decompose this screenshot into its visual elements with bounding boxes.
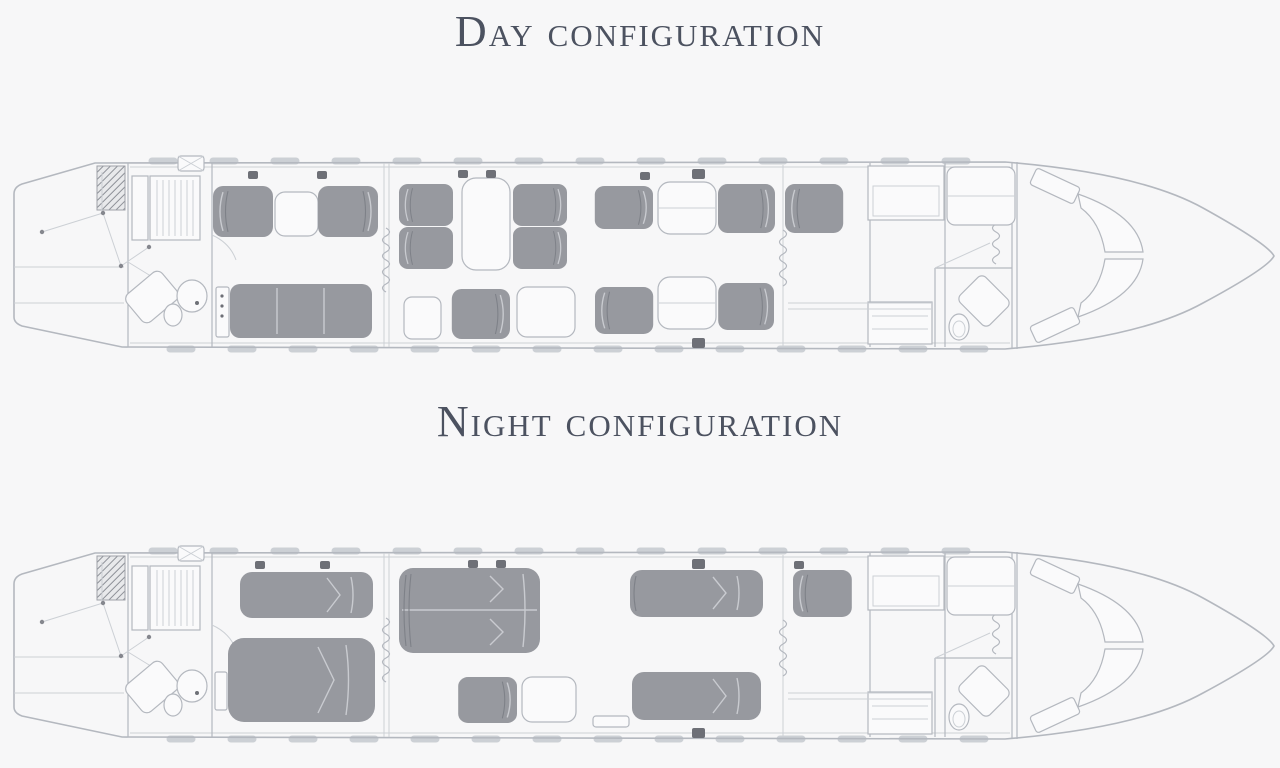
seat	[718, 283, 774, 330]
ottoman	[522, 677, 576, 722]
conference-seat	[513, 184, 567, 226]
day-plan	[14, 156, 1274, 349]
bed	[240, 572, 373, 618]
seat	[452, 289, 510, 339]
bed	[630, 570, 763, 617]
night-plan	[14, 546, 1274, 739]
conference-seat	[399, 184, 453, 226]
seat	[595, 186, 653, 229]
conference-table	[462, 178, 510, 270]
divan	[230, 284, 372, 338]
conference-seat	[399, 227, 453, 269]
bed	[228, 638, 375, 722]
seat	[318, 186, 378, 237]
seat	[718, 184, 775, 233]
aircraft-floor-plans	[0, 0, 1280, 768]
aft-table	[275, 192, 318, 236]
ottoman	[404, 297, 441, 339]
side-seat	[517, 287, 575, 337]
seat	[793, 570, 852, 617]
double-bed	[399, 568, 540, 653]
seat	[785, 184, 843, 233]
bed	[632, 672, 761, 720]
conference-seat	[513, 227, 567, 269]
seat	[458, 677, 517, 723]
seat	[595, 287, 653, 334]
seat	[213, 186, 273, 237]
